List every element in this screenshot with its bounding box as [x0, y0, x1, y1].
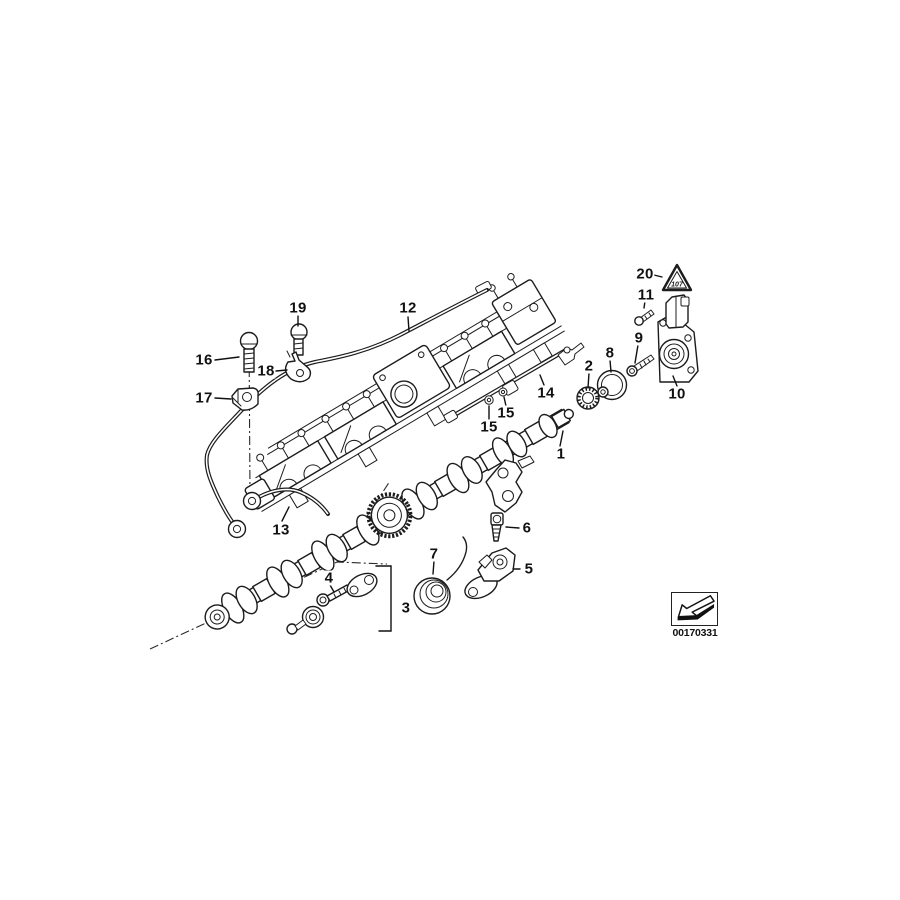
leader-line-7	[433, 561, 434, 574]
callout-16: 16	[194, 353, 213, 368]
callout-18: 18	[256, 364, 275, 379]
callout-12: 12	[398, 301, 417, 316]
callout-4: 4	[324, 571, 335, 586]
image-number: 00170331	[662, 627, 728, 639]
callout-3: 3	[401, 601, 412, 616]
callout-6: 6	[522, 521, 533, 536]
change-arrow-icon	[672, 593, 716, 624]
leader-line-12	[408, 317, 409, 331]
leader-line-17	[215, 398, 231, 399]
leader-line-14	[540, 375, 544, 385]
callout-8: 8	[605, 346, 616, 361]
leader-line-2	[588, 373, 589, 388]
parts-diagram-canvas: 107	[0, 0, 900, 900]
leader-line-9	[635, 345, 638, 363]
callout-17: 17	[194, 391, 213, 406]
leader-line-6	[506, 527, 519, 528]
callout-13: 13	[271, 523, 290, 538]
leader-line-1	[560, 431, 563, 446]
callout-20: 20	[635, 267, 654, 282]
callout-11: 11	[637, 288, 655, 303]
callout-5: 5	[524, 562, 535, 577]
callout-2: 2	[584, 359, 595, 374]
leader-line-8	[610, 360, 611, 372]
leader-line-18	[276, 370, 287, 371]
callout-14: 14	[536, 386, 555, 401]
leader-line-13	[282, 507, 289, 521]
callout-1: 1	[556, 447, 567, 462]
callout-19: 19	[288, 301, 307, 316]
leader-line-16	[215, 357, 239, 360]
leader-line-10	[673, 376, 677, 386]
stamp-box	[671, 592, 718, 626]
callout-7: 7	[429, 547, 440, 562]
leader-lines	[0, 0, 900, 900]
leader-line-20	[654, 275, 662, 277]
callout-9: 9	[634, 331, 645, 346]
callout-15: 15	[479, 420, 498, 435]
callout-15: 15	[496, 406, 515, 421]
callout-10: 10	[667, 387, 686, 402]
